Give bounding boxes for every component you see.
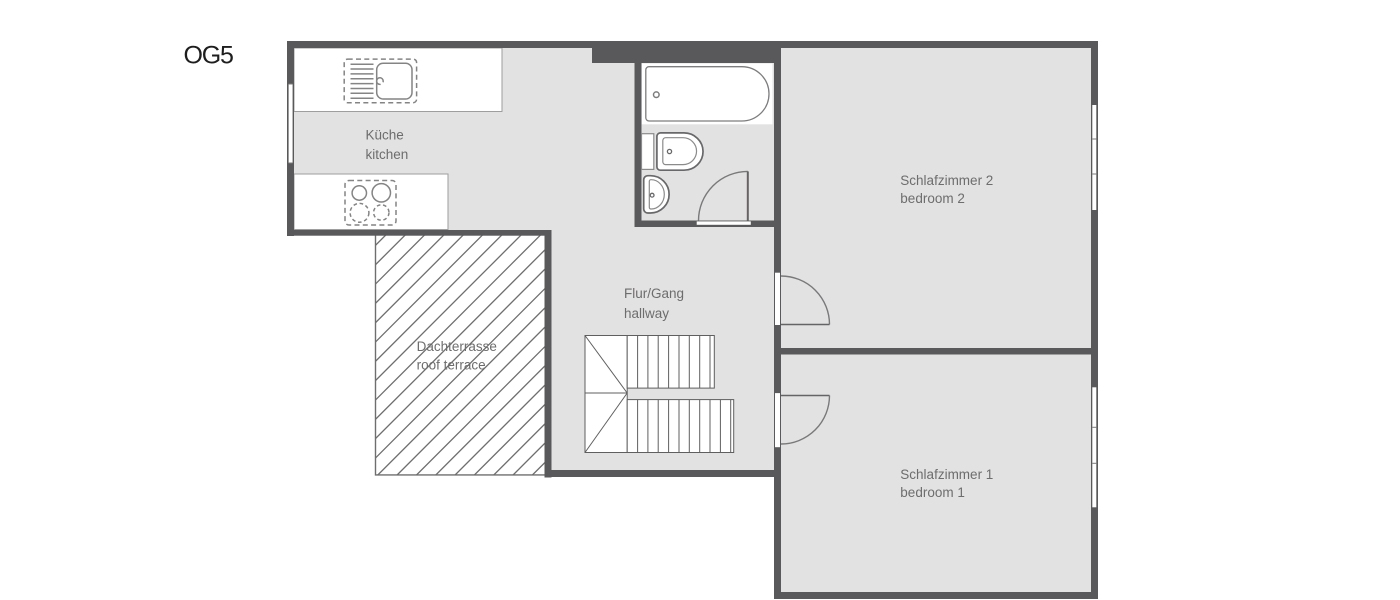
svg-text:Schlafzimmer 2: Schlafzimmer 2 <box>900 173 993 188</box>
svg-text:Flur/Gang: Flur/Gang <box>624 286 684 301</box>
svg-text:kitchen: kitchen <box>366 147 409 162</box>
svg-text:hallway: hallway <box>624 306 669 321</box>
svg-text:bedroom 1: bedroom 1 <box>900 485 965 500</box>
svg-text:Küche: Küche <box>366 128 404 143</box>
svg-text:OG5: OG5 <box>184 41 233 69</box>
svg-text:bedroom 2: bedroom 2 <box>900 191 965 206</box>
svg-text:roof terrace: roof terrace <box>417 357 486 372</box>
svg-text:Schlafzimmer 1: Schlafzimmer 1 <box>900 467 993 482</box>
